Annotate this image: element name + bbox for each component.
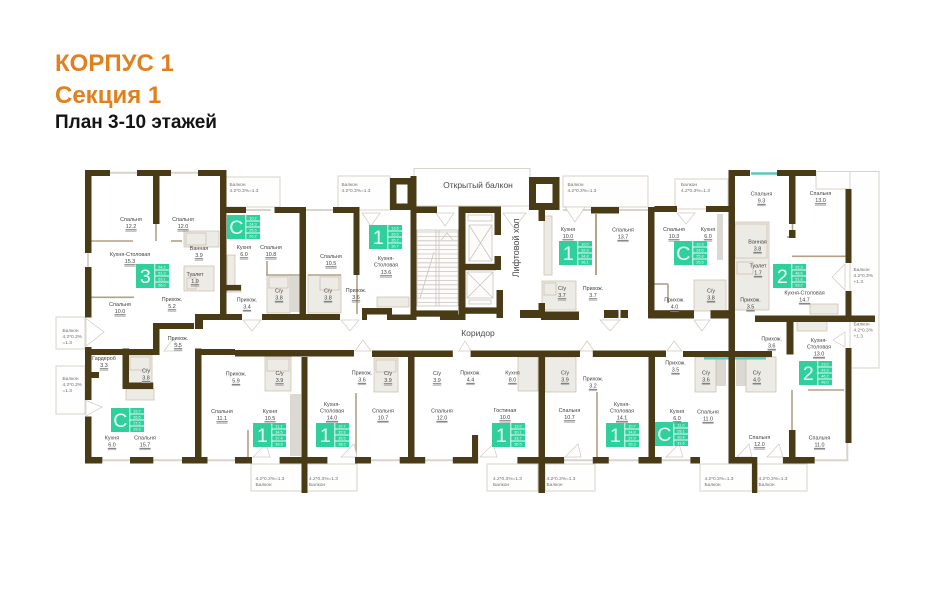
svg-text:4.2*0.3%=1.3: 4.2*0.3%=1.3	[493, 476, 522, 482]
svg-text:10.0: 10.0	[115, 309, 126, 315]
svg-text:61.3: 61.3	[158, 272, 165, 276]
svg-text:Спальня: Спальня	[749, 435, 771, 441]
svg-text:6.0: 6.0	[673, 416, 681, 422]
svg-text:35.5: 35.5	[514, 443, 521, 447]
svg-text:Прихож.: Прихож.	[168, 336, 189, 342]
svg-text:С/у: С/у	[384, 371, 392, 377]
svg-text:33.7: 33.7	[514, 437, 521, 441]
svg-text:10.0: 10.0	[500, 415, 511, 421]
svg-text:10.5: 10.5	[326, 261, 337, 267]
svg-text:Спальня: Спальня	[211, 409, 233, 415]
svg-text:Спальня: Спальня	[320, 254, 342, 260]
svg-text:9.3: 9.3	[758, 199, 766, 205]
svg-text:3.6: 3.6	[768, 344, 776, 350]
svg-text:Прихож.: Прихож.	[583, 377, 604, 383]
svg-text:Кухня: Кухня	[670, 409, 685, 415]
svg-text:Спальня: Спальня	[431, 409, 453, 415]
svg-text:3.5: 3.5	[672, 368, 680, 374]
svg-text:30.4: 30.4	[677, 436, 684, 440]
svg-text:Балкон: Балкон	[309, 482, 325, 488]
svg-text:6.0: 6.0	[704, 234, 712, 240]
svg-text:4.2*0.3%=1.3: 4.2*0.3%=1.3	[342, 188, 371, 194]
svg-text:2: 2	[803, 363, 814, 385]
svg-text:Кухня: Кухня	[105, 436, 120, 442]
svg-text:4.2*0.3%=1.3: 4.2*0.3%=1.3	[309, 476, 338, 482]
svg-text:14.7: 14.7	[799, 298, 810, 304]
svg-text:4.2*0.3%=1.3: 4.2*0.3%=1.3	[759, 476, 788, 482]
svg-text:11.1: 11.1	[217, 416, 227, 422]
svg-text:С/у: С/у	[753, 371, 761, 377]
svg-text:3.5: 3.5	[747, 305, 755, 311]
svg-text:Секция 1: Секция 1	[55, 82, 161, 109]
svg-text:12.0: 12.0	[754, 442, 765, 448]
svg-text:Спальня: Спальня	[372, 409, 394, 415]
svg-text:Коридор: Коридор	[461, 328, 495, 338]
svg-text:План 3-10 этажей: План 3-10 этажей	[55, 112, 217, 133]
svg-text:Балкон: Балкон	[230, 182, 246, 188]
svg-text:Прихож.: Прихож.	[226, 372, 247, 378]
svg-text:53.2: 53.2	[795, 284, 802, 288]
svg-text:С/у: С/у	[558, 286, 566, 292]
svg-text:Спальня: Спальня	[260, 245, 282, 251]
svg-text:1.7: 1.7	[754, 271, 762, 277]
svg-text:Балкон: Балкон	[342, 182, 358, 188]
svg-text:1: 1	[563, 243, 574, 265]
svg-text:26.2: 26.2	[249, 235, 256, 239]
svg-text:13.0: 13.0	[814, 352, 825, 358]
svg-text:3.9: 3.9	[561, 378, 569, 384]
svg-text:30.1: 30.1	[514, 431, 521, 435]
svg-text:Спальня: Спальня	[109, 302, 131, 308]
svg-text:КОРПУС 1: КОРПУС 1	[55, 50, 174, 77]
svg-text:Кухня: Кухня	[263, 409, 278, 415]
svg-text:Прихож.: Прихож.	[162, 297, 183, 303]
svg-text:6.0: 6.0	[240, 252, 248, 258]
svg-text:25.8: 25.8	[696, 255, 703, 259]
svg-text:С/у: С/у	[433, 371, 441, 377]
svg-text:Прихож.: Прихож.	[352, 371, 373, 377]
svg-text:51.8: 51.8	[795, 278, 802, 282]
svg-text:39.3: 39.3	[628, 443, 635, 447]
svg-text:С/у: С/у	[707, 289, 715, 295]
svg-text:11.0: 11.0	[814, 443, 824, 449]
svg-text:Кухня: Кухня	[701, 227, 716, 233]
svg-text:3.8: 3.8	[142, 376, 150, 382]
svg-text:26.5: 26.5	[696, 261, 703, 265]
svg-text:Балкон: Балкон	[854, 322, 870, 328]
svg-text:12.0: 12.0	[178, 224, 189, 230]
svg-text:Кухня: Кухня	[561, 227, 576, 233]
svg-text:4.2*0.3%=1.3: 4.2*0.3%=1.3	[705, 476, 734, 482]
svg-text:Прихож.: Прихож.	[583, 286, 604, 292]
svg-text:Спальня: Спальня	[697, 410, 719, 416]
svg-text:37.4: 37.4	[275, 437, 282, 441]
svg-text:12.0: 12.0	[514, 425, 521, 429]
svg-text:Прихож.: Прихож.	[664, 298, 685, 304]
svg-text:43.9: 43.9	[821, 369, 828, 373]
svg-text:1: 1	[320, 425, 331, 447]
svg-text:Прихож.: Прихож.	[346, 288, 367, 294]
svg-text:4.4: 4.4	[467, 378, 475, 384]
svg-text:4.0: 4.0	[753, 378, 761, 384]
svg-text:1.9: 1.9	[191, 279, 199, 285]
svg-text:54.2: 54.2	[158, 266, 165, 270]
svg-text:С/у: С/у	[561, 371, 569, 377]
svg-text:4.2*0.3%: 4.2*0.3%	[63, 382, 83, 388]
svg-text:С: С	[113, 410, 127, 432]
svg-text:Столовая: Столовая	[320, 409, 344, 415]
svg-text:Кухня-: Кухня-	[378, 256, 394, 262]
svg-text:3.8: 3.8	[707, 296, 715, 302]
svg-text:1: 1	[257, 425, 268, 447]
svg-text:10.3: 10.3	[669, 234, 680, 240]
svg-text:10.7: 10.7	[564, 415, 575, 421]
svg-text:38.2: 38.2	[338, 443, 345, 447]
svg-text:2: 2	[777, 266, 788, 288]
svg-text:4.2*0.3%=1.3: 4.2*0.3%=1.3	[256, 476, 285, 482]
svg-text:10.7: 10.7	[338, 425, 345, 429]
svg-text:10.0: 10.0	[563, 234, 574, 240]
svg-text:Балкон: Балкон	[681, 182, 697, 188]
svg-text:25.5: 25.5	[249, 229, 256, 233]
svg-text:Спальня: Спальня	[751, 192, 773, 198]
svg-text:Лифтовой хол: Лифтовой хол	[511, 219, 521, 278]
svg-text:1: 1	[496, 425, 507, 447]
svg-text:Прихож.: Прихож.	[665, 361, 686, 367]
svg-text:3.2: 3.2	[589, 384, 597, 390]
svg-text:63.1: 63.1	[158, 278, 165, 282]
svg-text:48.6: 48.6	[795, 272, 802, 276]
svg-text:11.0: 11.0	[703, 417, 713, 423]
svg-text:29.3: 29.3	[133, 428, 140, 432]
svg-text:27.5: 27.5	[133, 422, 140, 426]
svg-text:36.1: 36.1	[581, 261, 588, 265]
svg-text:3.9: 3.9	[384, 378, 392, 384]
svg-text:32.9: 32.9	[581, 249, 588, 253]
svg-text:35.2: 35.2	[391, 239, 398, 243]
svg-text:Спальня: Спальня	[810, 191, 832, 197]
svg-text:Балкон: Балкон	[63, 376, 79, 382]
svg-text:Спальня: Спальня	[172, 217, 194, 223]
svg-text:Туалет: Туалет	[186, 272, 204, 278]
svg-text:=1.3: =1.3	[63, 388, 73, 394]
svg-text:36.7: 36.7	[391, 245, 398, 249]
svg-text:3.6: 3.6	[358, 378, 366, 384]
svg-text:33.5: 33.5	[391, 233, 398, 237]
svg-text:Балкон: Балкон	[759, 482, 775, 488]
svg-text:Балкон: Балкон	[568, 182, 584, 188]
svg-text:34.5: 34.5	[275, 431, 282, 435]
svg-text:13.0: 13.0	[815, 198, 826, 204]
svg-text:24.6: 24.6	[696, 249, 703, 253]
svg-text:3.4: 3.4	[243, 305, 251, 311]
svg-text:Кухня: Кухня	[237, 245, 252, 251]
svg-text:Кухня-: Кухня-	[614, 402, 630, 408]
svg-text:4.2*0.3%=1.3: 4.2*0.3%=1.3	[547, 476, 576, 482]
svg-text:66.0: 66.0	[158, 284, 165, 288]
svg-text:Туалет: Туалет	[749, 264, 767, 270]
svg-text:10.3: 10.3	[696, 243, 703, 247]
svg-text:Открытый балкон: Открытый балкон	[443, 180, 513, 190]
svg-text:14.1: 14.1	[617, 416, 628, 422]
svg-text:Спальня: Спальня	[120, 217, 142, 223]
svg-text:3.8: 3.8	[275, 296, 283, 302]
svg-text:46.2: 46.2	[821, 375, 828, 379]
svg-text:3.6: 3.6	[702, 378, 710, 384]
svg-text:26.6: 26.6	[133, 416, 140, 420]
svg-text:39.9: 39.9	[275, 443, 282, 447]
svg-text:10.0: 10.0	[581, 243, 588, 247]
svg-text:12.0: 12.0	[437, 416, 448, 422]
svg-text:37.9: 37.9	[628, 437, 635, 441]
svg-text:Прихож.: Прихож.	[237, 298, 258, 304]
svg-text:Кухня-Столовая: Кухня-Столовая	[110, 252, 150, 258]
svg-text:23.0: 23.0	[821, 363, 828, 367]
svg-text:Спальня: Спальня	[663, 227, 685, 233]
svg-text:28.1: 28.1	[677, 430, 684, 434]
svg-text:Ванная: Ванная	[190, 246, 209, 252]
svg-text:10.8: 10.8	[266, 252, 277, 258]
svg-text:Спальня: Спальня	[134, 436, 156, 442]
svg-text:3.6: 3.6	[352, 295, 360, 301]
svg-text:С/у: С/у	[142, 369, 150, 375]
svg-text:24.3: 24.3	[249, 223, 256, 227]
svg-text:3.9: 3.9	[195, 253, 203, 259]
svg-text:Кухня-: Кухня-	[324, 402, 340, 408]
svg-text:8.0: 8.0	[509, 378, 517, 384]
svg-text:11.0: 11.0	[677, 424, 684, 428]
svg-text:14.0: 14.0	[327, 416, 338, 422]
svg-text:С/у: С/у	[702, 371, 710, 377]
svg-text:6.0: 6.0	[108, 443, 116, 449]
svg-text:13.6: 13.6	[391, 227, 398, 231]
svg-text:13.7: 13.7	[618, 235, 629, 241]
svg-text:+1.3: +1.3	[854, 279, 864, 285]
svg-text:С: С	[676, 243, 690, 265]
svg-text:15.3: 15.3	[125, 259, 136, 265]
svg-text:С/у: С/у	[324, 289, 332, 295]
svg-text:3.3: 3.3	[100, 363, 108, 369]
svg-text:=1.3: =1.3	[63, 340, 73, 346]
svg-text:4.2*0.3%=1.3: 4.2*0.3%=1.3	[681, 188, 710, 194]
svg-text:Гостиная: Гостиная	[494, 408, 517, 414]
svg-text:10.5: 10.5	[265, 416, 276, 422]
svg-text:11.1: 11.1	[275, 425, 282, 429]
svg-text:4.2*0.3%: 4.2*0.3%	[63, 334, 83, 340]
svg-text:Спальня: Спальня	[559, 408, 581, 414]
svg-text:5.2: 5.2	[168, 304, 176, 310]
svg-text:1: 1	[373, 227, 384, 249]
svg-text:Прихож.: Прихож.	[460, 371, 481, 377]
svg-text:10.2: 10.2	[249, 217, 256, 221]
svg-text:35.5: 35.5	[338, 437, 345, 441]
svg-text:10.7: 10.7	[378, 416, 389, 422]
svg-text:С/у: С/у	[275, 289, 283, 295]
svg-text:Балкон: Балкон	[854, 267, 870, 273]
svg-text:15.7: 15.7	[140, 443, 151, 449]
svg-text:Балкон: Балкон	[256, 482, 272, 488]
svg-text:15.7: 15.7	[133, 410, 140, 414]
svg-text:3.8: 3.8	[754, 247, 762, 253]
svg-text:13.6: 13.6	[381, 270, 392, 276]
svg-text:С: С	[657, 424, 671, 446]
svg-text:3.9: 3.9	[433, 378, 441, 384]
svg-text:4.2*0.3%=1.3: 4.2*0.3%=1.3	[568, 188, 597, 194]
svg-text:Прихож.: Прихож.	[740, 298, 761, 304]
svg-text:1: 1	[610, 425, 621, 447]
svg-text:34.8: 34.8	[581, 255, 588, 259]
svg-text:Столовая: Столовая	[374, 263, 398, 269]
svg-text:Ванная: Ванная	[748, 240, 767, 246]
svg-text:3: 3	[140, 266, 151, 288]
svg-text:3.8: 3.8	[324, 296, 332, 302]
svg-text:С/у: С/у	[275, 371, 283, 377]
svg-text:31.6: 31.6	[677, 442, 684, 446]
svg-text:3.7: 3.7	[558, 293, 566, 299]
svg-text:22.3: 22.3	[795, 266, 802, 270]
svg-text:32.8: 32.8	[338, 431, 345, 435]
svg-text:Столовая: Столовая	[807, 345, 831, 351]
svg-text:Балкон: Балкон	[63, 328, 79, 334]
svg-text:34.8: 34.8	[628, 431, 635, 435]
svg-text:Балкон: Балкон	[493, 482, 509, 488]
svg-text:Спальня: Спальня	[809, 436, 831, 442]
svg-text:Столовая: Столовая	[610, 409, 634, 415]
svg-text:5.5: 5.5	[174, 343, 182, 349]
svg-text:5.9: 5.9	[232, 379, 240, 385]
svg-text:Прихож.: Прихож.	[761, 337, 782, 343]
svg-text:Гардероб: Гардероб	[92, 356, 116, 362]
svg-text:Спальня: Спальня	[612, 228, 634, 234]
svg-text:12.2: 12.2	[126, 224, 137, 230]
svg-text:Балкон: Балкон	[547, 482, 563, 488]
svg-text:48.0: 48.0	[821, 381, 828, 385]
svg-text:С: С	[229, 217, 243, 239]
svg-text:4.0: 4.0	[671, 305, 679, 311]
svg-text:4.2*0.3%=1.3: 4.2*0.3%=1.3	[230, 188, 259, 194]
svg-text:Кухня-Столовая: Кухня-Столовая	[784, 291, 824, 297]
svg-text:3.7: 3.7	[589, 293, 597, 299]
svg-text:+1.3: +1.3	[854, 334, 864, 340]
svg-text:Балкон: Балкон	[705, 482, 721, 488]
svg-text:4.2*0.3%: 4.2*0.3%	[854, 273, 874, 279]
svg-text:10.7: 10.7	[628, 425, 635, 429]
svg-text:Кухня-: Кухня-	[811, 338, 827, 344]
svg-text:3.9: 3.9	[276, 378, 284, 384]
svg-text:Кухня: Кухня	[505, 371, 520, 377]
svg-text:4.2*0.3%: 4.2*0.3%	[854, 328, 874, 334]
